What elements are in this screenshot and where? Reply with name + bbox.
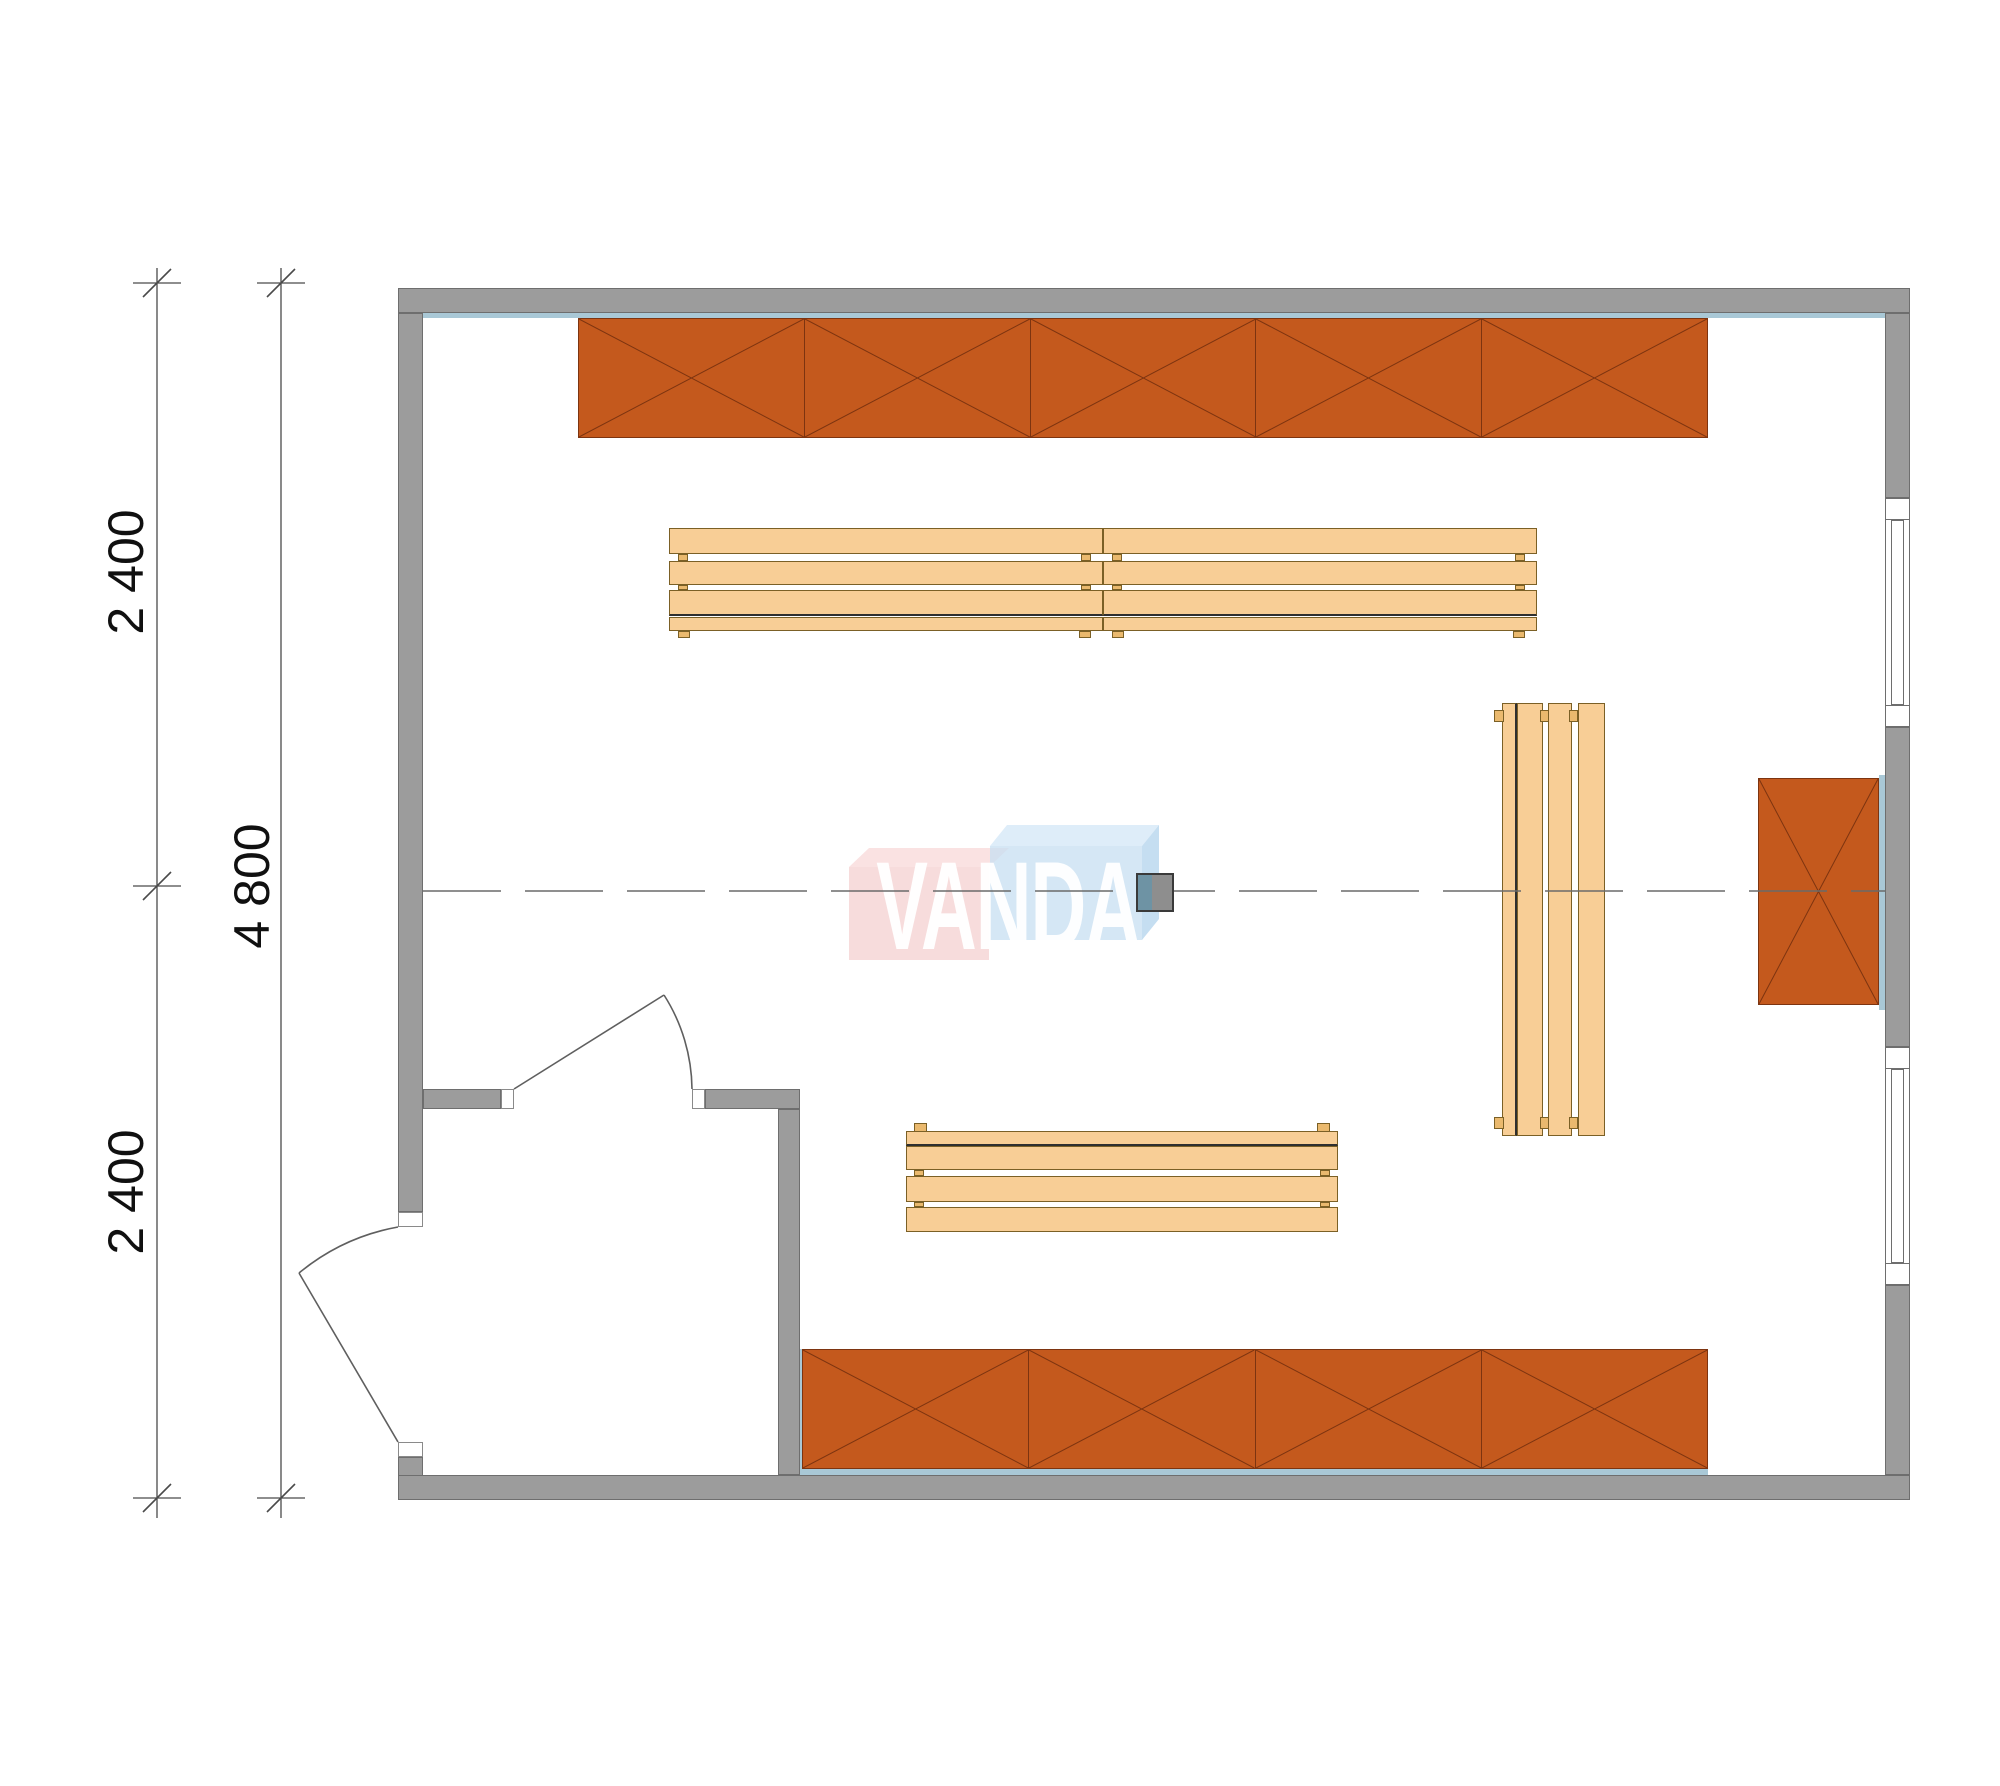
floor-plan-canvas: { "watermark": { "text": "VANDA", "pink_… (0, 0, 2000, 1786)
bench-leg (1569, 1117, 1578, 1129)
dimension-tick (133, 1484, 181, 1512)
bench-top-unit-b (1103, 528, 1537, 638)
bench-leg (1515, 554, 1525, 561)
bench-right-vertical (1494, 703, 1605, 1136)
bench-leg (1081, 585, 1091, 590)
bench-board (669, 528, 1103, 554)
dimension-tick (133, 872, 181, 900)
shelf-right (1758, 778, 1879, 1005)
interior-door-jamb-left (501, 1089, 514, 1109)
bench-board (1548, 703, 1572, 1136)
bench-board (1502, 703, 1517, 1136)
exterior-wall-right-upper (1885, 313, 1910, 498)
bench-leg (1079, 631, 1091, 638)
bench-leg (678, 585, 688, 590)
bench-board (906, 1176, 1338, 1202)
bench-board (1103, 528, 1537, 554)
heater-blue-half (1138, 875, 1152, 910)
interior-wall-left-stub (423, 1089, 501, 1109)
entry-door-jamb-top (398, 1212, 423, 1227)
exterior-wall-right-lower (1885, 1285, 1910, 1475)
bench-bottom (906, 1123, 1338, 1232)
bench-board (1103, 590, 1537, 616)
window-frame-line (1886, 1263, 1909, 1264)
bench-board (906, 1146, 1338, 1170)
dimension-tick (257, 269, 305, 297)
bench-board (906, 1207, 1338, 1232)
shelf-section (1031, 319, 1257, 437)
window-upper (1885, 498, 1910, 727)
bench-leg (1513, 631, 1525, 638)
window-frame-line (1886, 705, 1909, 706)
bench-leg (1112, 585, 1122, 590)
shelf-section (1256, 319, 1482, 437)
shelf-section (1482, 1350, 1707, 1468)
dimension-tick (257, 1484, 305, 1512)
bench-leg (678, 631, 690, 638)
interior-wall-vertical (778, 1109, 800, 1475)
exterior-wall-top (398, 288, 1910, 313)
bench-board (669, 561, 1103, 585)
bench-board (1103, 561, 1537, 585)
bench-leg (1112, 631, 1124, 638)
watermark-text: VANDA (876, 835, 1140, 978)
bench-leg (1540, 710, 1549, 722)
window-glazing (1891, 1069, 1904, 1263)
entry-door-swing (299, 1227, 398, 1442)
bench-leg (1081, 554, 1091, 561)
heater-unit (1136, 873, 1174, 912)
interior-wall-right-stub (705, 1089, 800, 1109)
bench-board (669, 617, 1103, 631)
shelf-section (1759, 779, 1878, 1004)
bench-top-unit-a (669, 528, 1103, 638)
interior-door-jamb-right (692, 1089, 705, 1109)
bench-board (669, 590, 1103, 616)
exterior-wall-bottom (398, 1475, 1910, 1500)
bench-leg (1540, 1117, 1549, 1129)
bench-board (906, 1131, 1338, 1146)
window-lower (1885, 1047, 1910, 1285)
bench-board (1103, 617, 1537, 631)
exterior-wall-right-middle (1885, 727, 1910, 1047)
vanda-watermark: VANDA (830, 815, 1180, 975)
bench-leg (1569, 710, 1578, 722)
shelf-section (1482, 319, 1707, 437)
bench-leg (1515, 585, 1525, 590)
interior-door-swing (514, 995, 692, 1089)
bench-board (1517, 703, 1543, 1136)
shelf-section (579, 319, 805, 437)
exterior-wall-left-upper (398, 313, 423, 1212)
dimension-label-total: 4 800 (224, 776, 280, 996)
shelf-section (1256, 1350, 1482, 1468)
shelf-top (578, 318, 1708, 438)
dimension-label-bottom-segment: 2 400 (98, 1082, 154, 1302)
window-glazing (1891, 520, 1904, 705)
dimension-label-top-segment: 2 400 (98, 462, 154, 682)
shelf-section (1029, 1350, 1255, 1468)
bench-leg (1494, 1117, 1504, 1129)
bench-leg (678, 554, 688, 561)
shelf-section (803, 1350, 1029, 1468)
shelf-bottom (802, 1349, 1708, 1469)
shelf-section (805, 319, 1031, 437)
bench-leg (1494, 710, 1504, 722)
dimension-tick (133, 269, 181, 297)
bench-leg (1112, 554, 1122, 561)
bench-board (1578, 703, 1605, 1136)
entry-door-jamb-bottom (398, 1442, 423, 1457)
